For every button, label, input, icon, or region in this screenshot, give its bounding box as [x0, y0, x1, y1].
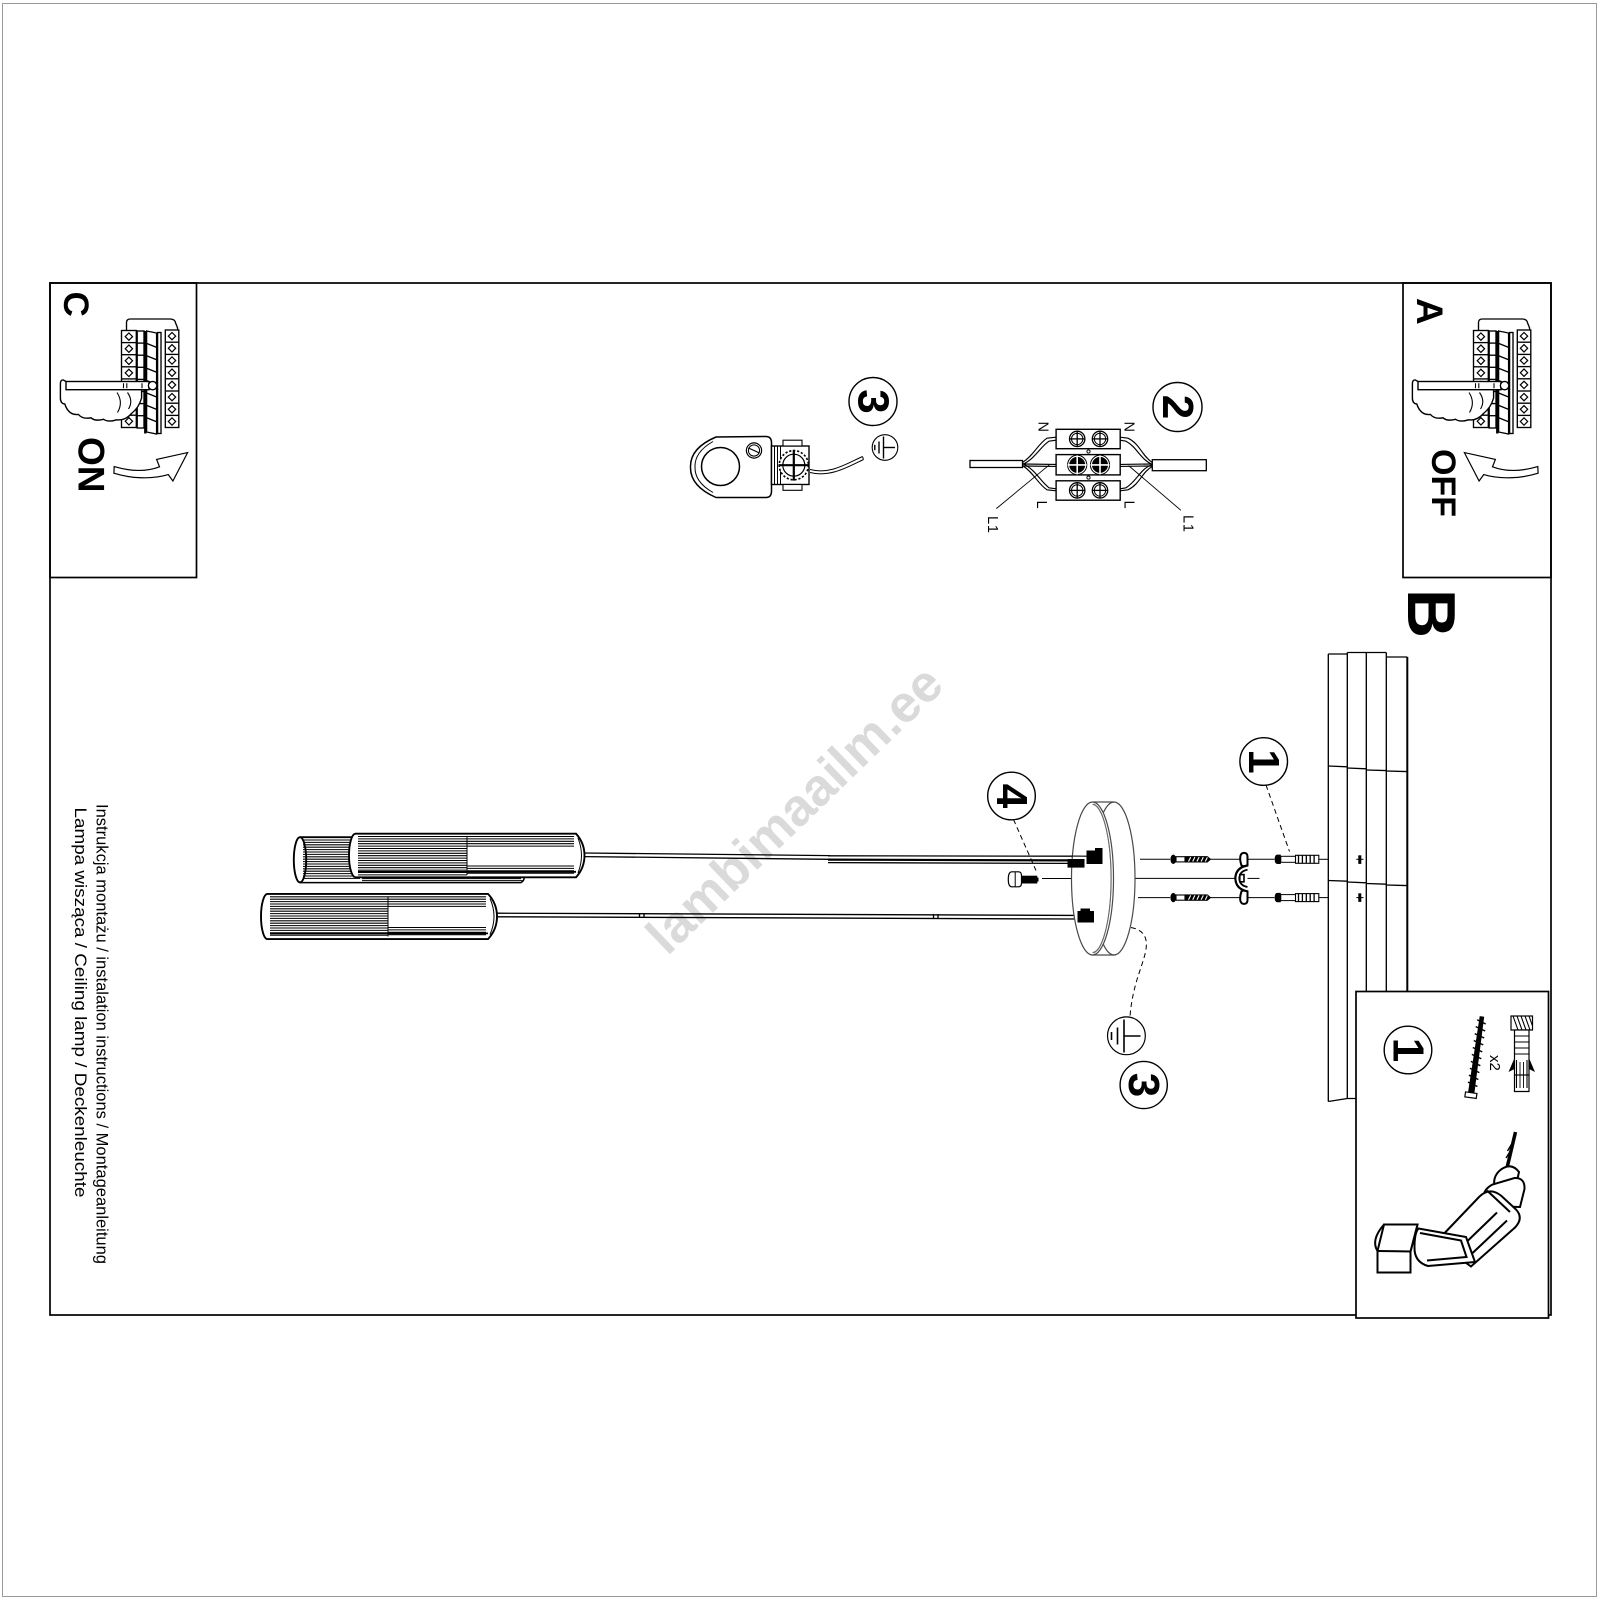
svg-text:1: 1: [1384, 1038, 1433, 1062]
svg-text:B: B: [1393, 589, 1469, 638]
svg-text:A: A: [1409, 298, 1450, 325]
svg-text:4: 4: [987, 784, 1036, 809]
svg-text:Lampa wisząca / Ceiling lamp /: Lampa wisząca / Ceiling lamp / Deckenleu…: [71, 808, 90, 1198]
svg-text:C: C: [56, 292, 95, 317]
svg-text:L1: L1: [984, 516, 1000, 534]
svg-text:2: 2: [1153, 395, 1202, 419]
svg-text:N: N: [1035, 422, 1051, 432]
svg-text:Instrukcja montażu / instalati: Instrukcja montażu / instalation instruc…: [93, 804, 112, 1264]
svg-text:3: 3: [1119, 1073, 1168, 1097]
svg-text:N: N: [1121, 422, 1137, 432]
svg-text:L: L: [1033, 501, 1049, 509]
svg-text:OFF: OFF: [1424, 449, 1462, 517]
svg-text:x2: x2: [1486, 1055, 1503, 1071]
svg-text:1: 1: [1239, 749, 1288, 773]
svg-text:L: L: [1121, 501, 1137, 509]
svg-text:3: 3: [849, 389, 898, 413]
svg-text:ON: ON: [70, 437, 111, 493]
svg-text:L1: L1: [1180, 515, 1196, 533]
